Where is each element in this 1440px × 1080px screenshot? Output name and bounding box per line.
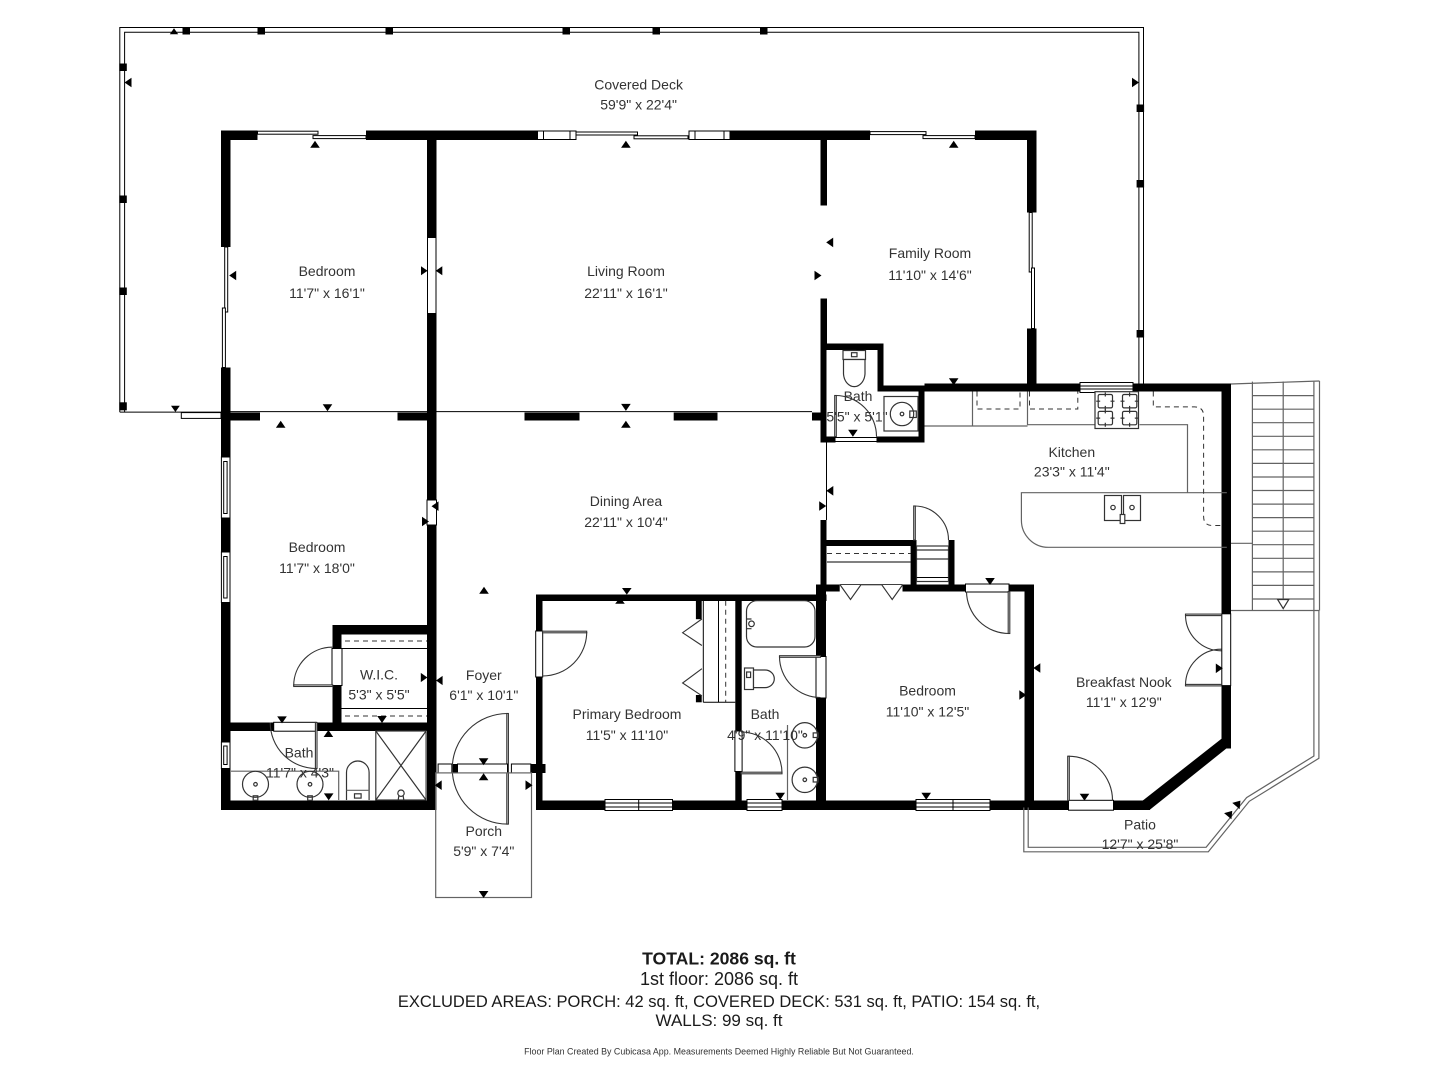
svg-text:EXCLUDED AREAS: PORCH: 42 sq.: EXCLUDED AREAS: PORCH: 42 sq. ft, COVERE… <box>398 993 1040 1011</box>
svg-text:6'1" x 10'1": 6'1" x 10'1" <box>449 687 518 703</box>
svg-text:WALLS: 99 sq. ft: WALLS: 99 sq. ft <box>656 1011 783 1030</box>
svg-text:Bedroom: Bedroom <box>899 683 956 699</box>
svg-text:11'10" x 12'5": 11'10" x 12'5" <box>886 704 970 720</box>
svg-text:5'3" x 5'5": 5'3" x 5'5" <box>348 687 409 703</box>
svg-text:Primary Bedroom: Primary Bedroom <box>573 706 682 722</box>
svg-text:11'1" x 12'9": 11'1" x 12'9" <box>1086 694 1162 710</box>
svg-text:Bedroom: Bedroom <box>289 539 346 555</box>
svg-text:11'7" x 16'1": 11'7" x 16'1" <box>289 285 365 301</box>
svg-text:4'9" x 11'10": 4'9" x 11'10" <box>727 727 803 743</box>
svg-text:Floor Plan Created By Cubicasa: Floor Plan Created By Cubicasa App. Meas… <box>524 1047 914 1057</box>
svg-text:59'9" x 22'4": 59'9" x 22'4" <box>600 97 677 113</box>
svg-text:Living Room: Living Room <box>587 263 665 279</box>
svg-text:Porch: Porch <box>466 823 503 839</box>
svg-text:11'7" x 4'3": 11'7" x 4'3" <box>266 765 334 781</box>
svg-text:11'10" x 14'6": 11'10" x 14'6" <box>888 267 972 283</box>
svg-text:Family Room: Family Room <box>889 245 971 261</box>
svg-text:22'11" x 16'1": 22'11" x 16'1" <box>584 285 668 301</box>
svg-text:11'7" x 18'0": 11'7" x 18'0" <box>279 560 355 576</box>
svg-text:Patio: Patio <box>1124 817 1156 833</box>
svg-text:5'5" x 5'1": 5'5" x 5'1" <box>826 409 887 425</box>
svg-text:5'9" x 7'4": 5'9" x 7'4" <box>453 843 514 859</box>
svg-text:Bedroom: Bedroom <box>299 263 356 279</box>
svg-text:22'11" x 10'4": 22'11" x 10'4" <box>584 514 668 530</box>
svg-text:TOTAL: 2086 sq. ft: TOTAL: 2086 sq. ft <box>642 949 796 969</box>
svg-text:11'5" x 11'10": 11'5" x 11'10" <box>586 727 669 743</box>
svg-text:Breakfast Nook: Breakfast Nook <box>1076 674 1173 690</box>
svg-text:Bath: Bath <box>844 388 873 404</box>
svg-text:W.I.C.: W.I.C. <box>360 667 398 683</box>
svg-text:Covered Deck: Covered Deck <box>594 77 684 93</box>
svg-text:Dining Area: Dining Area <box>590 493 663 509</box>
svg-text:Kitchen: Kitchen <box>1048 444 1095 460</box>
svg-text:1st floor: 2086 sq. ft: 1st floor: 2086 sq. ft <box>640 969 798 989</box>
svg-text:Bath: Bath <box>751 706 780 722</box>
svg-text:Foyer: Foyer <box>466 667 502 683</box>
svg-text:12'7" x 25'8": 12'7" x 25'8" <box>1102 836 1179 852</box>
svg-text:Bath: Bath <box>285 745 314 761</box>
svg-text:23'3" x 11'4": 23'3" x 11'4" <box>1034 464 1110 480</box>
